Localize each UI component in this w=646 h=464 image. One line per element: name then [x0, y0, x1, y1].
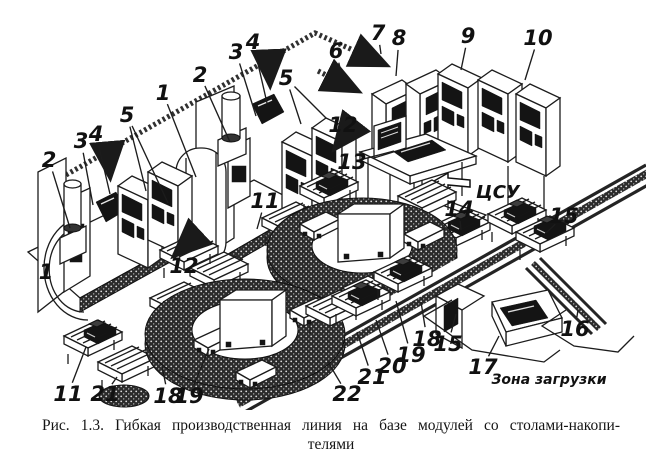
callout-leader-5 [290, 89, 301, 124]
figure-caption-line2: телями [42, 436, 620, 454]
callout-leader-10 [525, 49, 534, 80]
callout-leader-8 [396, 50, 398, 76]
callout-13: 13 [337, 150, 366, 174]
figure-caption-line1: Рис. 1.3. Гибкая производственная линия … [42, 417, 620, 435]
callout-5: 5 [120, 103, 135, 127]
callout-4: 4 [245, 30, 261, 54]
callout-15: 15 [433, 332, 462, 356]
callout-4: 4 [88, 122, 104, 146]
callout-11: 11 [250, 189, 279, 213]
callout-7: 7 [371, 21, 386, 45]
callout-leader-6 [339, 63, 341, 72]
loading-zone-label: Зона загрузки [491, 372, 606, 388]
callout-10: 10 [523, 26, 552, 50]
callout-1: 1 [156, 81, 171, 105]
callout-2: 2 [42, 148, 57, 172]
callout-leader-11 [72, 347, 86, 383]
callout-leader-5 [294, 86, 326, 118]
callout-15: 15 [549, 204, 578, 228]
callout-14: 14 [444, 197, 473, 221]
callout-9: 9 [461, 24, 476, 48]
callout-leader-7 [380, 45, 381, 54]
callout-17: 17 [468, 355, 498, 379]
callout-2: 2 [193, 63, 208, 87]
callout-leader-14 [460, 221, 461, 230]
callout-8: 8 [392, 26, 407, 50]
callout-1: 1 [39, 260, 54, 284]
callout-21: 21 [90, 382, 119, 406]
csu-label: ЦСУ [476, 182, 521, 203]
transport-cart [492, 290, 562, 346]
callout-3: 3 [229, 40, 244, 64]
callout-12: 12 [169, 254, 198, 278]
callout-3: 3 [74, 129, 89, 153]
callout-12: 12 [328, 113, 357, 137]
callout-16: 16 [560, 317, 589, 341]
callout-6: 6 [329, 39, 344, 63]
callout-11: 11 [53, 382, 82, 406]
callout-5: 5 [279, 66, 294, 90]
production-line-drawing: ЦСУ Зона загрузки 2345112123456789101213… [0, 0, 646, 410]
callout-19: 19 [174, 384, 203, 408]
figure-page: ЦСУ Зона загрузки 2345112123456789101213… [0, 0, 646, 464]
callout-leader-9 [461, 48, 466, 70]
